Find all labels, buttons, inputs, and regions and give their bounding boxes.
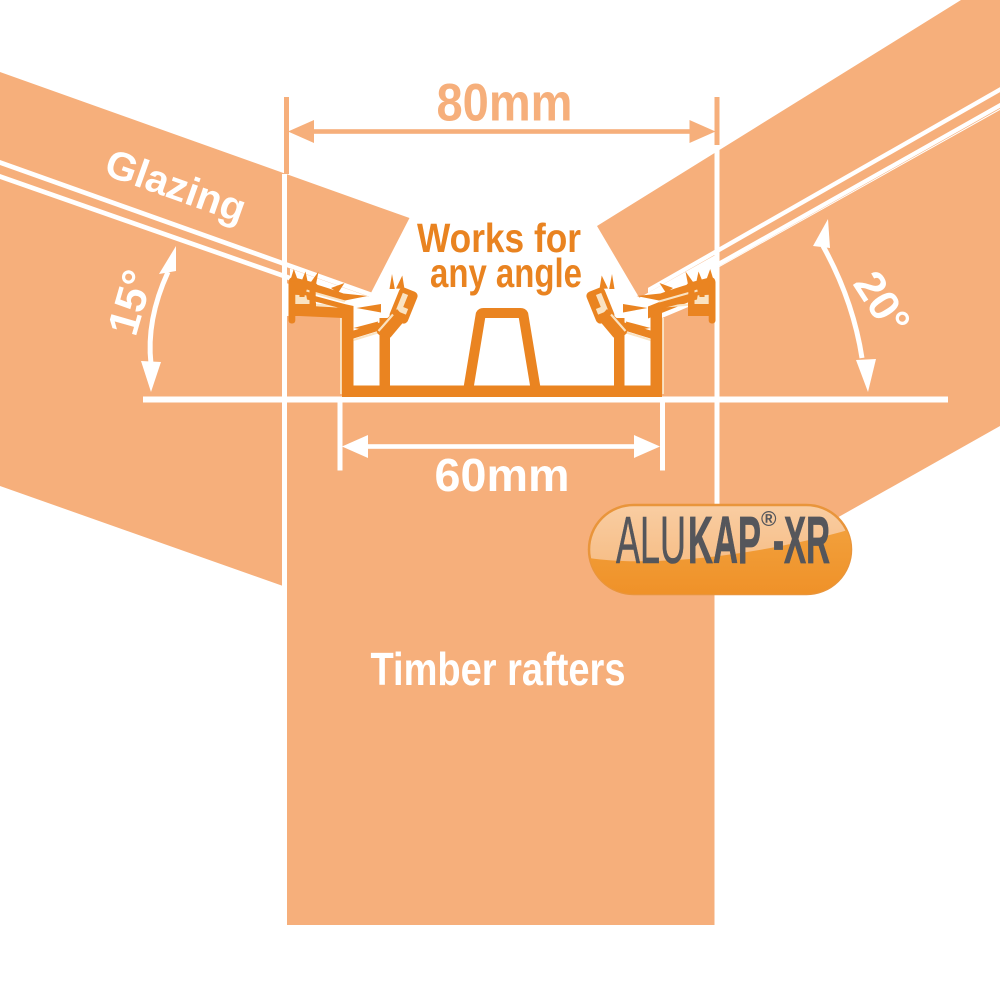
svg-text:Timber rafters: Timber rafters — [371, 643, 626, 695]
svg-text:60mm: 60mm — [435, 449, 570, 501]
svg-text:-XR: -XR — [773, 503, 830, 578]
svg-text:ALUKAP: ALUKAP — [616, 503, 761, 578]
svg-text:any angle: any angle — [430, 250, 582, 296]
svg-text:80mm: 80mm — [437, 74, 573, 133]
